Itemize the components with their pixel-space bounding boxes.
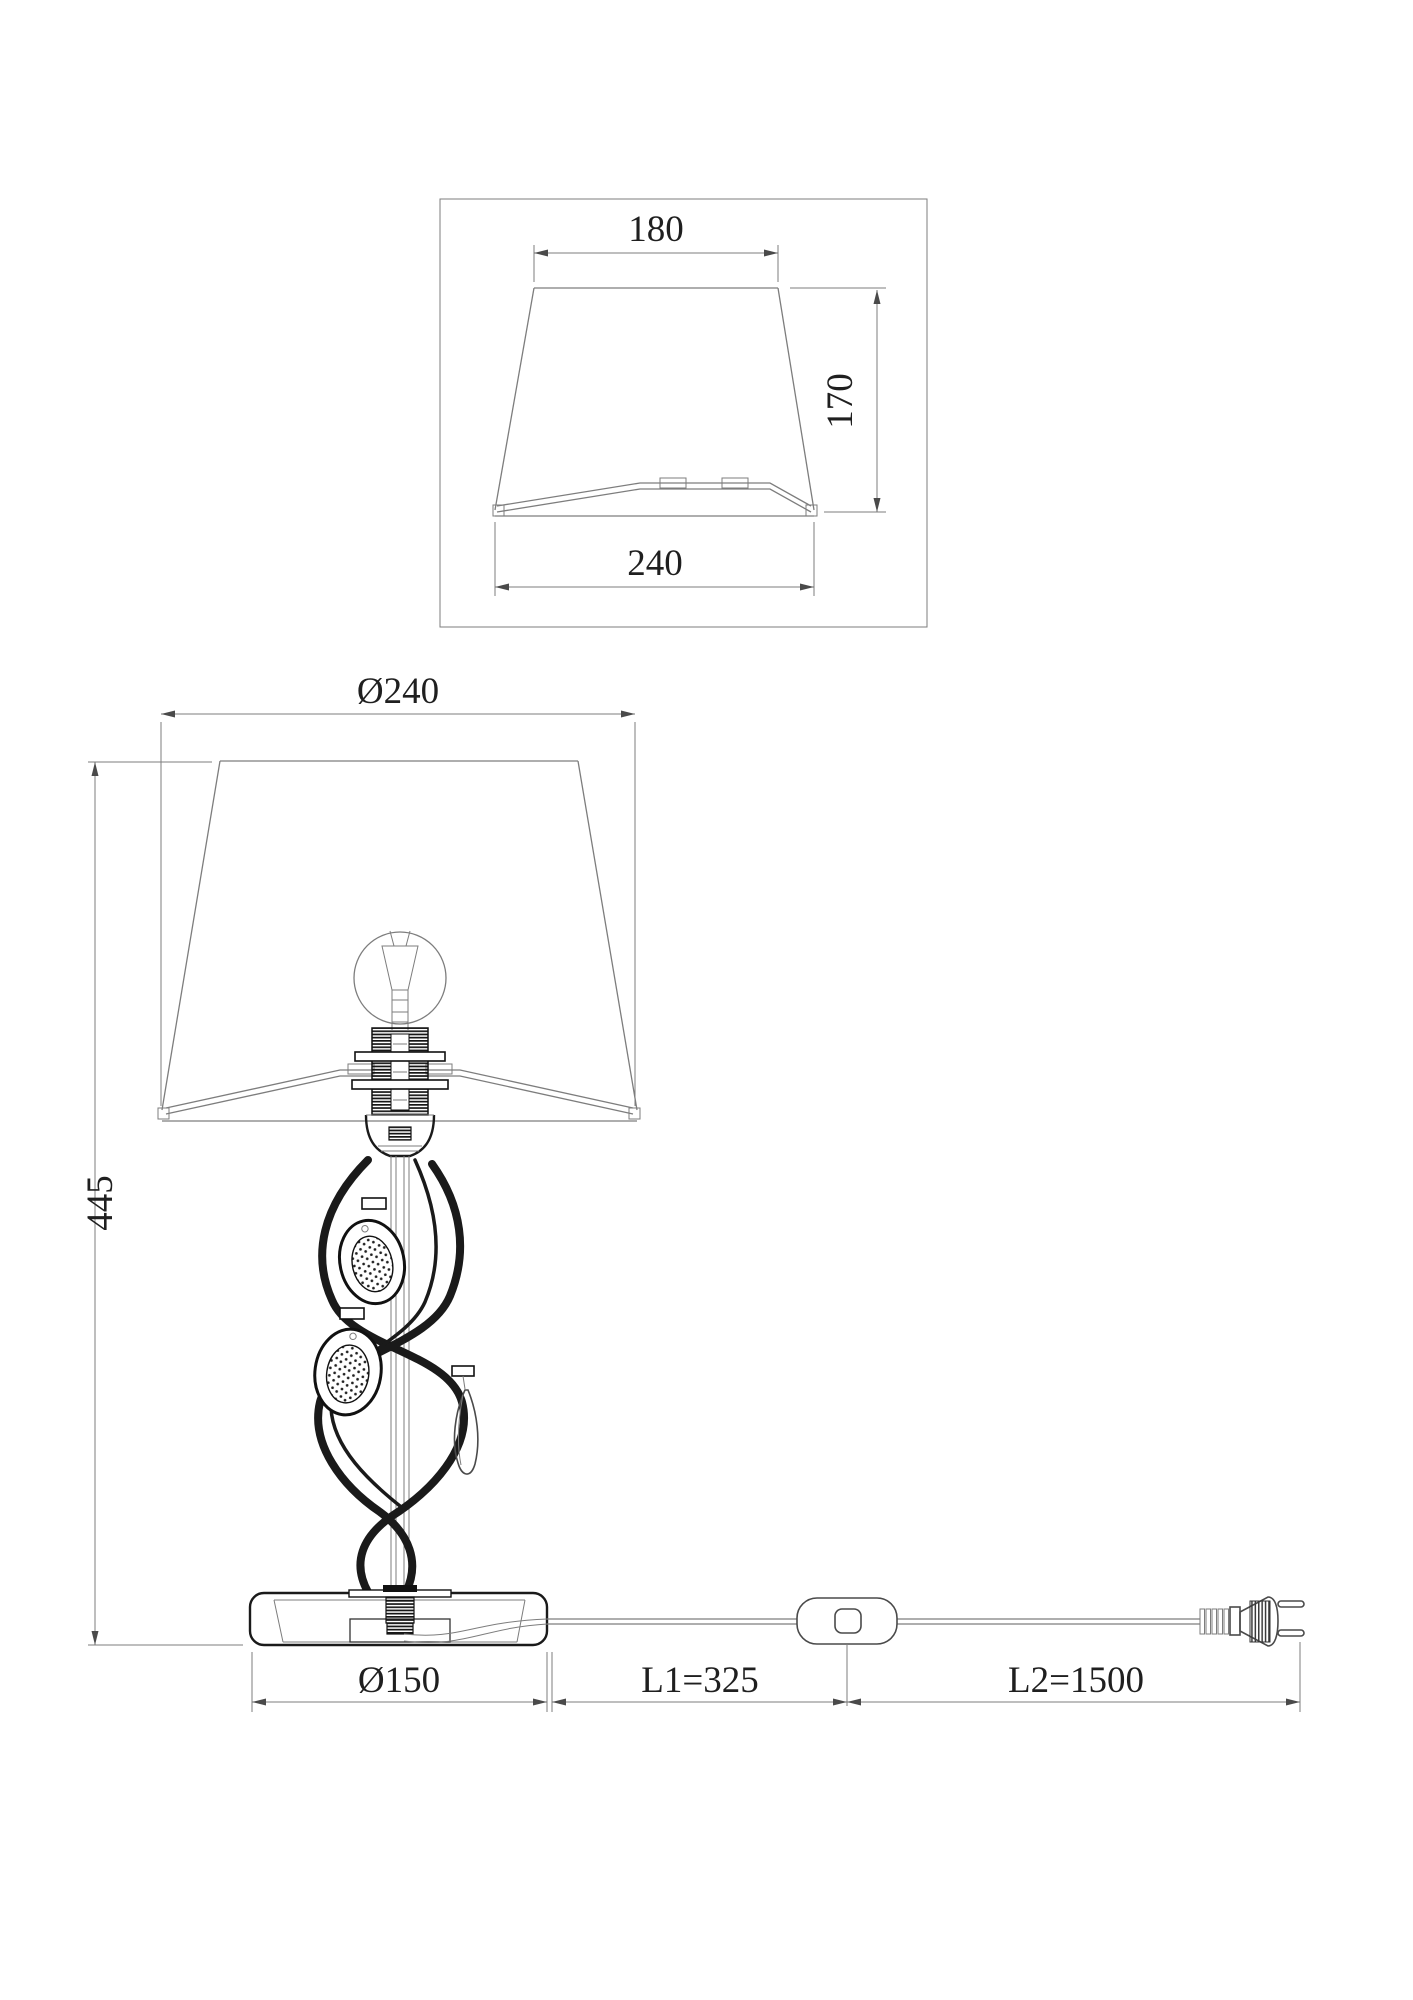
shade-section-outline	[493, 288, 817, 516]
dim-label-cord-l2: L2=1500	[1008, 1660, 1144, 1701]
cord-switch	[797, 1598, 897, 1644]
dim-cord-l2: L2=1500	[847, 1642, 1300, 1712]
socket-ring	[355, 1052, 445, 1061]
crystal-hanger	[452, 1366, 474, 1376]
leaf-medallion-upper	[332, 1214, 412, 1309]
front-view-drawing: Ø240 445 Ø150 L1=325	[80, 671, 1304, 1712]
dim-label-180: 180	[628, 209, 684, 250]
dim-label-240: 240	[627, 543, 683, 584]
dim-top-width: 180	[534, 209, 778, 282]
power-cord	[547, 1619, 1200, 1624]
switch-button	[835, 1609, 861, 1633]
dim-label-170: 170	[820, 373, 861, 429]
plug-prong	[1278, 1630, 1304, 1636]
fitter-notch	[348, 1064, 374, 1074]
plug-prong	[1278, 1601, 1304, 1607]
dim-section-height: 170	[790, 288, 886, 512]
plug-face	[1250, 1601, 1270, 1642]
dim-label-cord-l1: L1=325	[641, 1660, 758, 1701]
dim-label-base-diameter: Ø150	[358, 1660, 440, 1701]
rod-cap	[383, 1585, 417, 1592]
power-plug	[1200, 1597, 1304, 1646]
lock-nut	[387, 1623, 413, 1634]
fitter-notch	[426, 1064, 452, 1074]
lamp-socket	[352, 1028, 448, 1115]
dim-base-diameter: Ø150	[252, 1652, 547, 1712]
socket-ring	[352, 1080, 448, 1089]
lamp-drawing-svg: 180 240 170	[0, 0, 1413, 2000]
leaf-hanger	[340, 1308, 364, 1319]
top-view-drawing: 180 240 170	[440, 199, 927, 627]
technical-drawing-page: 180 240 170	[0, 0, 1413, 2000]
dim-cord-l1: L1=325	[552, 1644, 847, 1712]
light-bulb	[354, 931, 446, 1030]
threaded-rod	[386, 1597, 414, 1623]
dim-bottom-width: 240	[495, 522, 814, 596]
leaf-hanger	[362, 1198, 386, 1209]
dim-label-total-height: 445	[80, 1175, 121, 1231]
lamp-base	[250, 1585, 547, 1645]
dim-label-shade-diameter: Ø240	[357, 671, 439, 712]
